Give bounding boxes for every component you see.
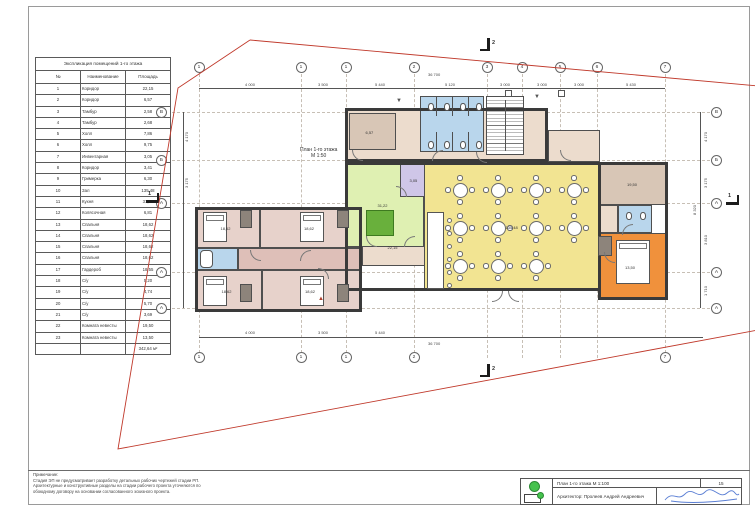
toilet-fixture bbox=[460, 103, 466, 111]
chair bbox=[583, 225, 589, 231]
section-tick bbox=[737, 195, 739, 204]
toilet-fixture bbox=[428, 103, 434, 111]
axis-bubble-top: 4 bbox=[517, 62, 528, 73]
wardrobe bbox=[240, 210, 252, 228]
chair bbox=[533, 175, 539, 181]
chair bbox=[483, 187, 489, 193]
room-area-label: 18,62 bbox=[305, 289, 315, 294]
drawing-title: План 1-го этажа М 1:100 bbox=[553, 479, 701, 488]
column-mark bbox=[505, 90, 512, 97]
chair bbox=[445, 225, 451, 231]
axis-bubble-right: В bbox=[711, 107, 722, 118]
dimension-label: 4 000 bbox=[245, 82, 255, 87]
wc-partition bbox=[452, 132, 453, 152]
chair bbox=[559, 225, 565, 231]
dimension-label: 36 700 bbox=[428, 72, 440, 77]
chair bbox=[533, 199, 539, 205]
entrance-mark-icon: ▼ bbox=[396, 98, 402, 104]
plan-canvas: План 1-го этажа М 1:50 11123456711127ВБА… bbox=[0, 0, 755, 511]
axis-bubble-bottom: 7 bbox=[660, 352, 671, 363]
dimension-label: 3 175 bbox=[184, 178, 189, 188]
axis-bubble-top: 1 bbox=[341, 62, 352, 73]
dimension-label: 3 000 bbox=[574, 82, 584, 87]
notes-line-3: обоюдному договору на основании согласов… bbox=[33, 489, 303, 495]
dining-table bbox=[567, 221, 582, 236]
axis-bubble-left: А bbox=[156, 267, 167, 278]
room-area-label: 13,50 bbox=[625, 265, 635, 270]
toilet-fixture bbox=[428, 141, 434, 149]
axis-bubble-left: А bbox=[156, 303, 167, 314]
section-label: 1 bbox=[728, 193, 731, 199]
chair bbox=[457, 251, 463, 257]
section-tick bbox=[480, 49, 489, 51]
axis-bubble-right: Б bbox=[711, 155, 722, 166]
axis-bubble-top: 3 bbox=[482, 62, 493, 73]
chair bbox=[571, 213, 577, 219]
wardrobe bbox=[240, 284, 252, 302]
door-swing bbox=[508, 291, 519, 302]
room-area-label: 6,57 bbox=[366, 130, 374, 135]
chair bbox=[521, 263, 527, 269]
dining-table bbox=[453, 221, 468, 236]
dining-table bbox=[567, 183, 582, 198]
axis-bubble-right: А bbox=[711, 303, 722, 314]
section-tick bbox=[480, 375, 489, 377]
chair bbox=[457, 213, 463, 219]
section-label: 1 bbox=[148, 191, 151, 197]
axis-bubble-top: 1 bbox=[296, 62, 307, 73]
bar-stool bbox=[447, 283, 452, 288]
section-label: 2 bbox=[492, 366, 495, 372]
chair bbox=[457, 237, 463, 243]
chair bbox=[545, 187, 551, 193]
bar-stool bbox=[447, 270, 452, 275]
room-area-label: 18,62 bbox=[222, 289, 232, 294]
dining-table bbox=[529, 183, 544, 198]
chair bbox=[507, 263, 513, 269]
title-block-main: План 1-го этажа М 1:100 15 Архитектор: П… bbox=[553, 479, 741, 504]
dining-table bbox=[453, 259, 468, 274]
axis-bubble-top: 2 bbox=[409, 62, 420, 73]
toilet-fixture bbox=[476, 141, 482, 149]
bar-counter bbox=[427, 212, 444, 289]
chair bbox=[457, 199, 463, 205]
notes-block: Примечание: Стадия ЭП не предусматривает… bbox=[33, 472, 303, 495]
dimension-label: 1 710 bbox=[703, 286, 708, 296]
room-area-label: 19,50 bbox=[627, 182, 637, 187]
wardrobe bbox=[337, 284, 349, 302]
room-top-strip-right bbox=[548, 130, 600, 162]
kitchen-island bbox=[366, 210, 394, 236]
dim-line-top bbox=[199, 88, 665, 89]
signature-cell bbox=[657, 488, 741, 504]
chair bbox=[483, 263, 489, 269]
logo-dot-icon bbox=[537, 492, 544, 499]
chair bbox=[507, 187, 513, 193]
chair bbox=[583, 187, 589, 193]
axis-bubble-right: А bbox=[711, 267, 722, 278]
bar-stool bbox=[447, 257, 452, 262]
dimension-label: 5 120 bbox=[445, 82, 455, 87]
room-area-label: 135,48 bbox=[506, 225, 518, 230]
axis-bubble-right: А bbox=[711, 198, 722, 209]
chair bbox=[521, 225, 527, 231]
signature-icon bbox=[661, 488, 741, 504]
toilet-fixture bbox=[626, 212, 632, 220]
chair bbox=[521, 187, 527, 193]
chair bbox=[559, 187, 565, 193]
bar-stool bbox=[447, 231, 452, 236]
chair bbox=[445, 187, 451, 193]
toilet-fixture bbox=[444, 103, 450, 111]
axis-bubble-left: Б bbox=[156, 155, 167, 166]
bed bbox=[616, 240, 650, 284]
chair bbox=[545, 263, 551, 269]
chair bbox=[545, 225, 551, 231]
axis-bubble-bottom: 1 bbox=[341, 352, 352, 363]
wc-partition bbox=[436, 96, 437, 116]
bar-stool bbox=[447, 244, 452, 249]
title-block: План 1-го этажа М 1:100 15 Архитектор: П… bbox=[520, 478, 742, 505]
door-swing bbox=[492, 291, 503, 302]
dimension-label: 4 170 bbox=[184, 132, 189, 142]
axis-bubble-top: 5 bbox=[555, 62, 566, 73]
chair bbox=[495, 275, 501, 281]
chair bbox=[445, 263, 451, 269]
chair bbox=[457, 275, 463, 281]
axis-bubble-bottom: 1 bbox=[296, 352, 307, 363]
dimension-label: 8 320 bbox=[692, 205, 697, 215]
dimension-label: 5 440 bbox=[375, 82, 385, 87]
company-logo-icon bbox=[529, 481, 540, 492]
chair bbox=[469, 225, 475, 231]
toilet-fixture bbox=[640, 212, 646, 220]
stair-rail bbox=[505, 100, 506, 151]
dimension-label: 3 500 bbox=[318, 330, 328, 335]
dimension-label: 4 000 bbox=[245, 330, 255, 335]
section-tick bbox=[157, 193, 159, 202]
entrance-mark-icon: ▼ bbox=[534, 94, 540, 100]
axis-bubble-left: В bbox=[156, 107, 167, 118]
chair bbox=[533, 251, 539, 257]
dim-line-right bbox=[700, 112, 701, 308]
architect-name: Архитектор: Пролеев Андрей Андреевич bbox=[553, 488, 657, 504]
dining-table bbox=[453, 183, 468, 198]
wc-partition bbox=[468, 132, 469, 152]
axis-bubble-top: 1 bbox=[194, 62, 205, 73]
bed-pillow bbox=[303, 215, 321, 221]
section-label: 2 bbox=[492, 40, 495, 46]
toilet-fixture bbox=[460, 141, 466, 149]
dimension-label: 3 500 bbox=[318, 82, 328, 87]
bed-pillow bbox=[303, 279, 321, 285]
bar-stool bbox=[447, 218, 452, 223]
chair bbox=[533, 237, 539, 243]
wc-partition bbox=[452, 96, 453, 116]
axis-bubble-bottom: 2 bbox=[409, 352, 420, 363]
entrance-mark-icon: ▲ bbox=[318, 296, 324, 302]
dimension-label: 3 175 bbox=[703, 178, 708, 188]
column-mark bbox=[558, 90, 565, 97]
dim-line-bottom bbox=[199, 337, 703, 338]
room-area-label: 18,62 bbox=[221, 226, 231, 231]
room-area-label: 18,62 bbox=[304, 226, 314, 231]
room-area-label: 3,05 bbox=[410, 178, 418, 183]
wc-partition bbox=[436, 132, 437, 152]
dining-table bbox=[491, 221, 506, 236]
chair bbox=[495, 251, 501, 257]
dimension-label: 3 000 bbox=[537, 82, 547, 87]
chair bbox=[495, 199, 501, 205]
dimension-label: 5 440 bbox=[375, 330, 385, 335]
chair bbox=[457, 175, 463, 181]
bathtub bbox=[200, 250, 213, 268]
chair bbox=[571, 175, 577, 181]
chair bbox=[469, 187, 475, 193]
chair bbox=[571, 237, 577, 243]
dining-table bbox=[491, 259, 506, 274]
chair bbox=[533, 275, 539, 281]
building-outline bbox=[345, 108, 548, 162]
sheet-number: 15 bbox=[701, 479, 741, 488]
dining-table bbox=[529, 259, 544, 274]
axis-bubble-bottom: 1 bbox=[194, 352, 205, 363]
bed-pillow bbox=[619, 243, 647, 249]
chair bbox=[533, 213, 539, 219]
dimension-label: 36 700 bbox=[428, 341, 440, 346]
dimension-label: 3 810 bbox=[703, 235, 708, 245]
bed-pillow bbox=[206, 215, 224, 221]
dining-table bbox=[491, 183, 506, 198]
chair bbox=[469, 263, 475, 269]
dining-table bbox=[529, 221, 544, 236]
plan-title: План 1-го этажа М 1:50 bbox=[300, 147, 337, 159]
chair bbox=[495, 175, 501, 181]
bed-pillow bbox=[206, 279, 224, 285]
room-area-label: 22,15 bbox=[388, 245, 398, 250]
dimension-label: 5 430 bbox=[626, 82, 636, 87]
dimension-label: 4 170 bbox=[703, 132, 708, 142]
wardrobe bbox=[337, 210, 349, 228]
chair bbox=[483, 225, 489, 231]
chair bbox=[495, 213, 501, 219]
plan-title-line2: М 1:50 bbox=[300, 153, 337, 159]
wc-partition bbox=[468, 96, 469, 116]
title-block-logo-cell bbox=[521, 479, 553, 504]
room-area-label: 31,22 bbox=[378, 203, 388, 208]
chair bbox=[571, 199, 577, 205]
toilet-fixture bbox=[444, 141, 450, 149]
dimension-label: 3 000 bbox=[500, 82, 510, 87]
axis-bubble-top: 7 bbox=[660, 62, 671, 73]
toilet-fixture bbox=[476, 103, 482, 111]
axis-bubble-top: 6 bbox=[592, 62, 603, 73]
chair bbox=[495, 237, 501, 243]
drawing-sheet: Экспликация помещений 1-го этажа № Наиме… bbox=[0, 0, 755, 511]
